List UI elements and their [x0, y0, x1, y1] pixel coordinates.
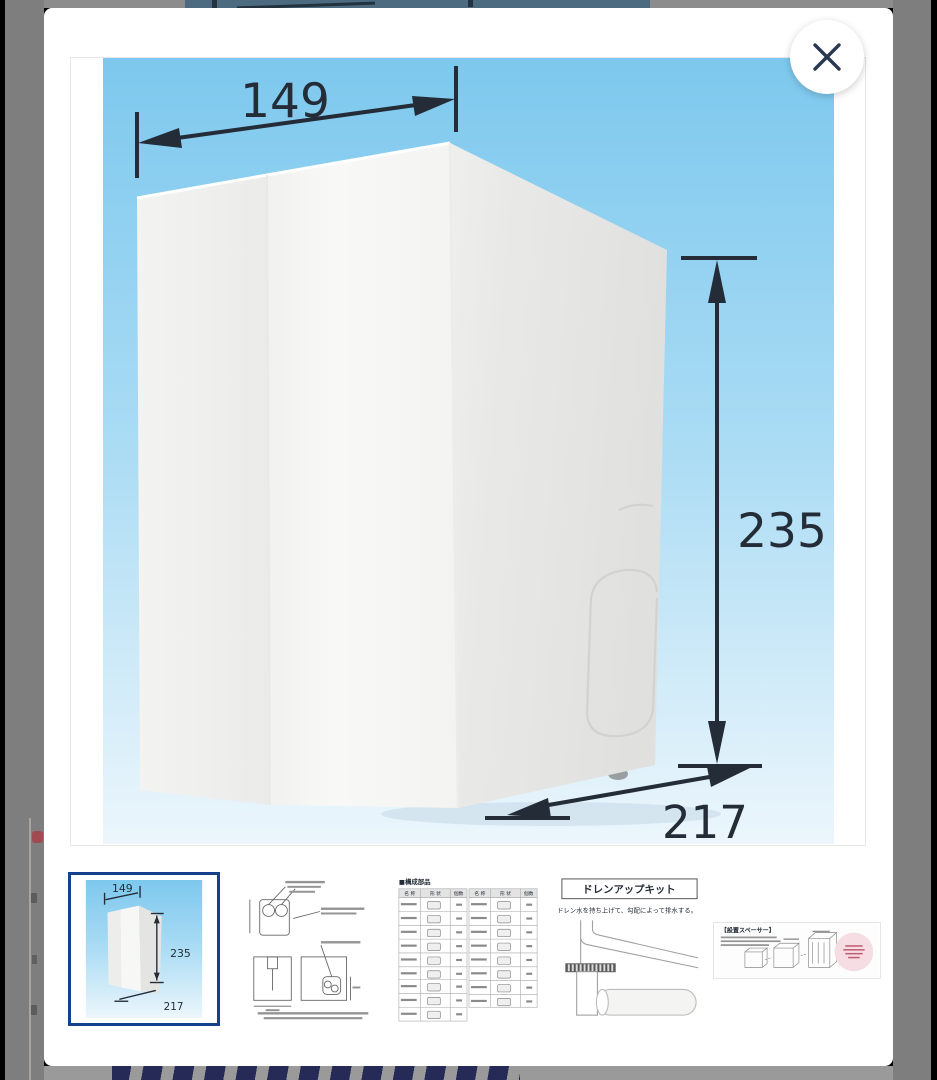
- width-value: 149: [240, 74, 330, 129]
- dimmed-mark: [212, 0, 217, 8]
- thumbnail-2-art: [238, 874, 388, 1024]
- dimmed-mark: [468, 0, 473, 7]
- thumbnail-strip: 149 235 217: [44, 864, 893, 1034]
- thumb3-col-shape: 形 状: [430, 890, 441, 897]
- product-photo: 149 235 217: [71, 58, 865, 845]
- thumb1-width: 149: [112, 882, 133, 895]
- box-left-face: [137, 175, 270, 805]
- thumb5-title: 【設置スペーサー】: [721, 927, 775, 935]
- thumbnail-1-art: 149 235 217: [75, 879, 213, 1019]
- thumb3-header: ■構成部品: [399, 877, 431, 886]
- backdrop-bottom[interactable]: [44, 1066, 893, 1080]
- thumb3-col-name: 名 称: [474, 890, 485, 897]
- thumb5-pink-badge: [835, 933, 874, 972]
- backdrop-right[interactable]: [893, 0, 931, 1080]
- dimmed-text-mark: [32, 955, 37, 964]
- dimmed-text-mark: [31, 1005, 37, 1015]
- height-value: 235: [737, 504, 827, 559]
- thumbnail-3-parts-table[interactable]: ■構成部品: [390, 872, 546, 1028]
- depth-value: 217: [662, 796, 748, 845]
- thumbnail-2-technical-drawing[interactable]: [237, 873, 389, 1025]
- product-box: [137, 143, 721, 826]
- close-button[interactable]: [790, 20, 864, 94]
- thumb3-col-qty: 個数: [524, 890, 534, 897]
- thumbnail-4-drain-up-kit[interactable]: ドレンアップキット ドレン水を持ち上げて、勾配によって排水する。: [553, 872, 706, 1026]
- thumbnail-4-art: ドレンアップキット ドレン水を持ち上げて、勾配によって排水する。: [554, 873, 705, 1025]
- main-image: 149 235 217: [70, 57, 866, 846]
- backdrop-left[interactable]: [5, 0, 44, 1080]
- thumbnail-5-art: 【設置スペーサー】: [714, 923, 880, 978]
- close-icon: [790, 20, 864, 94]
- thumbnail-1-dimensions[interactable]: 149 235 217: [68, 872, 220, 1026]
- dimmed-logo-letters: [112, 1066, 520, 1080]
- thumb3-col-qty: 個数: [454, 890, 464, 897]
- thumb3-col-shape: 形 状: [500, 890, 511, 897]
- thumb4-caption: ドレン水を持ち上げて、勾配によって排水する。: [557, 905, 697, 914]
- image-lightbox-modal: 149 235 217: [44, 8, 893, 1066]
- thumbnail-5-spacer[interactable]: 【設置スペーサー】: [713, 922, 881, 979]
- box-front-face: [267, 143, 458, 808]
- thumb1-depth: 217: [164, 1001, 184, 1013]
- thumb4-title: ドレンアップキット: [582, 883, 675, 896]
- backdrop-top[interactable]: [44, 0, 893, 8]
- dimmed-text-mark: [31, 893, 37, 903]
- box-right-face: [450, 143, 667, 808]
- dimmed-photo-sliver: [185, 0, 650, 8]
- thumb3-col-name: 名 称: [404, 890, 415, 897]
- thumbnail-3-art: ■構成部品: [391, 873, 545, 1027]
- dimmed-card-edge: [29, 818, 31, 1080]
- thumb1-height: 235: [170, 947, 191, 960]
- dimmed-red-content: [32, 831, 43, 843]
